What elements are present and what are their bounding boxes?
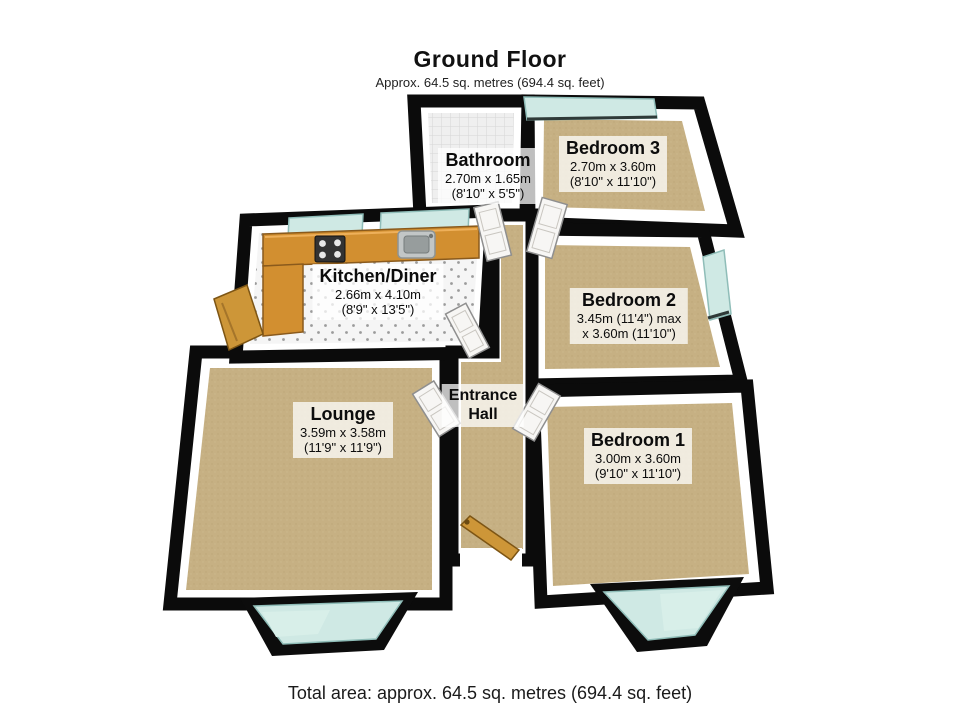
total-area-text: Total area: approx. 64.5 sq. metres (694… (0, 683, 980, 704)
kitchen-dim-metric: 2.66m x 4.10m (319, 287, 436, 302)
room-label-bathroom: Bathroom 2.70m x 1.65m (8'10" x 5'5") (438, 148, 538, 204)
floorplan-page: Ground Floor Approx. 64.5 sq. metres (69… (0, 0, 980, 712)
bathroom-name: Bathroom (445, 150, 531, 171)
room-bedroom1 (533, 386, 767, 602)
bedroom3-dim-imperial: (8'10" x 11'10") (566, 174, 660, 189)
room-label-lounge: Lounge 3.59m x 3.58m (11'9" x 11'9") (293, 402, 393, 458)
lounge-dim-metric: 3.59m x 3.58m (300, 425, 386, 440)
bedroom3-window (524, 97, 657, 120)
bedroom3-name: Bedroom 3 (566, 138, 660, 159)
bedroom2-dim-metric: 3.45m (11'4") max (577, 311, 681, 326)
lounge-dim-imperial: (11'9" x 11'9") (300, 440, 386, 455)
floorplan-drawing (0, 0, 980, 712)
bathroom-dim-metric: 2.70m x 1.65m (445, 171, 531, 186)
room-label-bedroom1: Bedroom 1 3.00m x 3.60m (9'10" x 11'10") (584, 428, 692, 484)
room-lounge (170, 352, 446, 604)
kitchen-name: Kitchen/Diner (319, 266, 436, 287)
hall-name-line1: Entrance (449, 386, 517, 405)
lounge-name: Lounge (300, 404, 386, 425)
lounge-bay-window (240, 592, 418, 656)
bedroom2-dim-imperial: x 3.60m (11'10") (577, 326, 681, 341)
bedroom3-dim-metric: 2.70m x 3.60m (566, 159, 660, 174)
room-label-entrance-hall: Entrance Hall (442, 384, 524, 427)
bedroom1-dim-imperial: (9'10" x 11'10") (591, 466, 685, 481)
room-label-kitchen: Kitchen/Diner 2.66m x 4.10m (8'9" x 13'5… (312, 264, 443, 320)
bedroom1-name: Bedroom 1 (591, 430, 685, 451)
kitchen-dim-imperial: (8'9" x 13'5") (319, 302, 436, 317)
bathroom-dim-imperial: (8'10" x 5'5") (445, 186, 531, 201)
hall-name-line2: Hall (449, 405, 517, 424)
sink-icon (398, 231, 435, 258)
room-label-bedroom3: Bedroom 3 2.70m x 3.60m (8'10" x 11'10") (559, 136, 667, 192)
hob-icon (315, 236, 345, 262)
bedroom1-dim-metric: 3.00m x 3.60m (591, 451, 685, 466)
room-label-bedroom2: Bedroom 2 3.45m (11'4") max x 3.60m (11'… (570, 288, 688, 344)
bedroom2-name: Bedroom 2 (577, 290, 681, 311)
bedroom1-bay-window (590, 577, 744, 652)
